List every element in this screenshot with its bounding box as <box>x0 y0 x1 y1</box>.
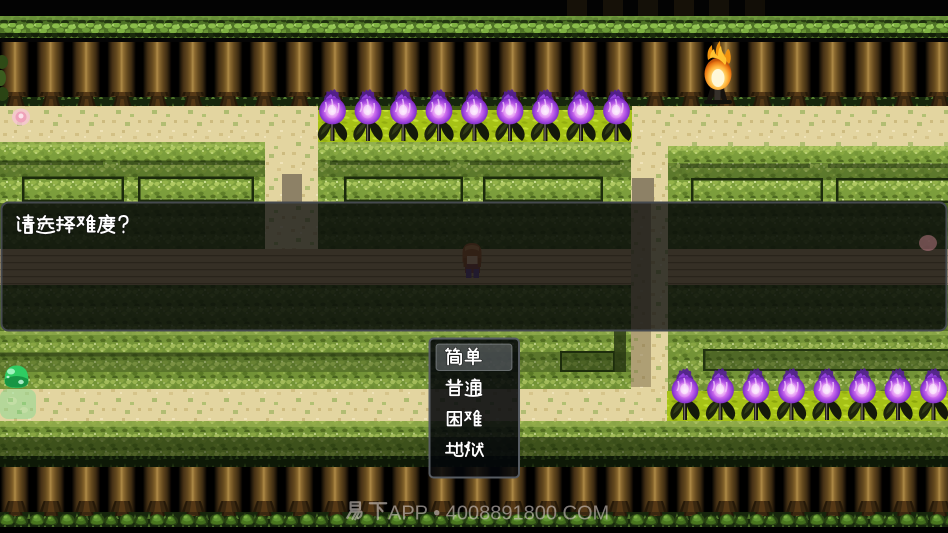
svg-text:APP • 4008891800.COM: APP • 4008891800.COM <box>388 503 609 525</box>
